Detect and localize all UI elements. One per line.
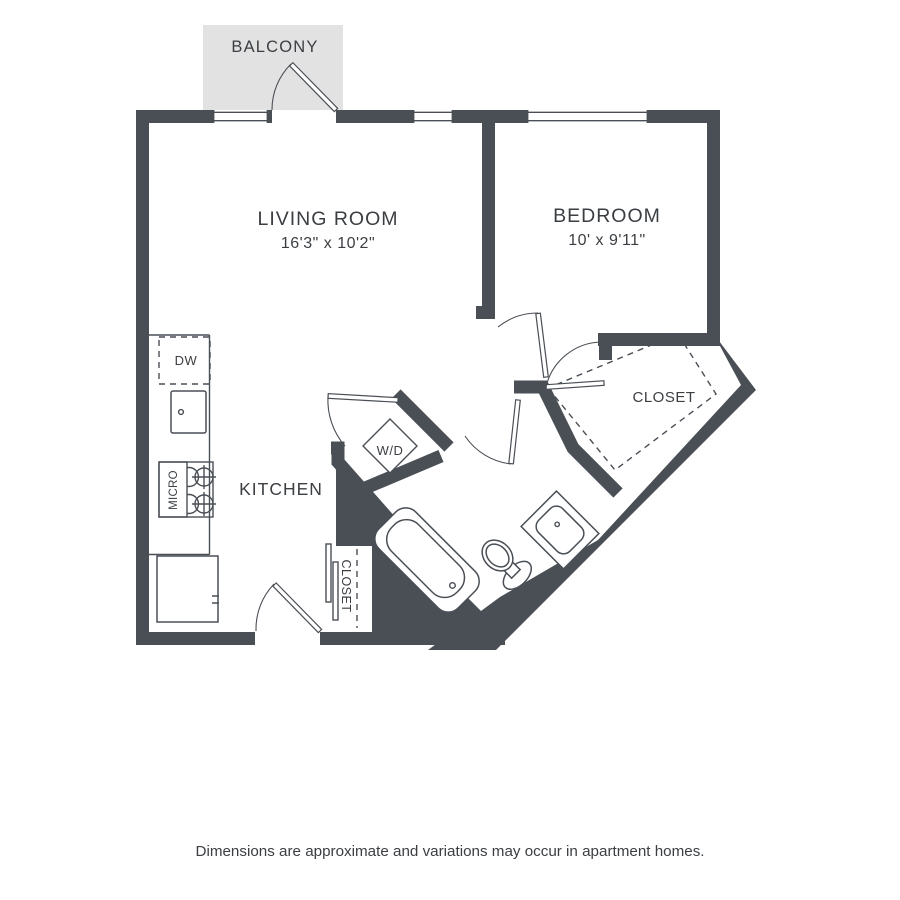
stove-icon: MICRO [159, 462, 216, 517]
laundry-door-arc [328, 396, 345, 446]
balcony-label: BALCONY [231, 38, 318, 56]
floor-plan-page: BALCONY [0, 0, 900, 900]
window-living-left [213, 110, 268, 123]
wall-left [136, 110, 149, 645]
wall-diagonal-exterior [428, 333, 756, 650]
dishwasher-label: DW [175, 353, 198, 368]
floor-plan-diagram: BALCONY [0, 0, 900, 900]
bedroom-closet-label: CLOSET [632, 389, 695, 406]
wall-divider [482, 110, 495, 308]
balcony-door-opening [272, 110, 336, 123]
entry-door-opening [255, 632, 320, 645]
bathroom-door-arc [465, 436, 511, 464]
microwave-label: MICRO [168, 470, 180, 510]
wall-closet-jamb [599, 346, 612, 360]
closet-door-arc [546, 342, 601, 387]
entry-door [273, 583, 322, 633]
bedroom-door-arc [498, 313, 538, 327]
window-bedroom [527, 110, 648, 123]
closet-door [546, 381, 604, 390]
sliding-door-panel [326, 544, 331, 602]
entry-closet-label: CLOSET [339, 559, 353, 612]
bedroom-dimensions: 10' x 9'11" [568, 232, 645, 249]
kitchen: DW MICRO KITCHEN [149, 335, 323, 622]
refrigerator-icon [157, 556, 219, 622]
sliding-door-panel [333, 562, 338, 620]
living-room-label: LIVING ROOM [257, 208, 398, 230]
wall-right [707, 110, 720, 346]
entry-door-arc [256, 584, 274, 631]
disclaimer-text: Dimensions are approximate and variation… [195, 843, 704, 860]
sink-icon [171, 391, 206, 433]
laundry-label: W/D [377, 443, 404, 458]
bathroom-door [509, 400, 520, 464]
wall-divider-end [476, 306, 495, 319]
entry-closet: CLOSET [326, 544, 372, 632]
wall-closet-sw [514, 387, 618, 493]
bedroom-label: BEDROOM [553, 205, 661, 227]
laundry-door [328, 394, 398, 403]
living-room-dimensions: 16'3" x 10'2" [281, 235, 375, 252]
window-living-right [413, 110, 453, 123]
wall-bedroom-bottom [598, 333, 720, 346]
kitchen-label: KITCHEN [239, 479, 323, 499]
bedroom-door [536, 313, 548, 377]
